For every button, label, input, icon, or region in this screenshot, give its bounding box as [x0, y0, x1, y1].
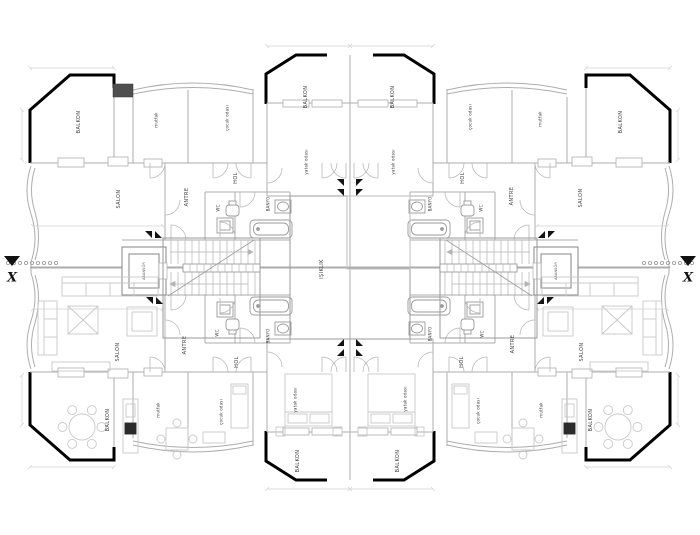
apartment-top-right: [348, 44, 680, 267]
room-label-salon-tr: SALON: [578, 189, 584, 208]
room-label-salon-tl: SALON: [116, 190, 122, 209]
room-label-balkon-corner-br: BALKON: [588, 409, 594, 432]
room-label-balkon-corner-tl: BALKON: [76, 111, 82, 134]
room-label-antre-tr: ANTRE: [509, 187, 515, 206]
apartment-top-left: [20, 44, 352, 267]
room-label-balkon-center-br: BALKON: [395, 450, 401, 473]
room-label-salon-br: SALON: [579, 343, 585, 362]
floor-plan-drawing: [0, 0, 700, 535]
room-label-balkon-center-bl: BALKON: [295, 450, 301, 473]
room-label-antre-tl: ANTRE: [184, 188, 190, 207]
room-label-banyo-tl: BANYO: [266, 197, 271, 212]
room-label-hol-tl: HOL: [233, 172, 239, 184]
shaft-block: [113, 84, 133, 97]
room-label-balkon-corner-bl: BALKON: [105, 409, 111, 432]
room-label-yatak-odasi-tl: yatak odası: [304, 149, 309, 174]
apartment-bottom-left: [20, 268, 352, 491]
section-marker-x-right: X: [683, 271, 693, 286]
room-label-cocuk-odasi-bl: çocuk odası: [219, 399, 224, 425]
room-label-balkon-center-tl: BALKON: [303, 86, 309, 109]
floor-plan-canvas: BALKON mutfak çocuk odası BALKON yatak o…: [0, 0, 700, 535]
light-well-label: IŞIKLIK: [319, 259, 325, 279]
room-label-antre-br: ANTRE: [510, 335, 516, 354]
room-label-mutfak-tl: mutfak: [154, 112, 159, 127]
room-label-cocuk-odasi-tr: çocuk odası: [468, 104, 473, 130]
room-label-cocuk-odasi-br: çocuk odası: [476, 398, 481, 424]
room-label-balkon-center-tr: BALKON: [390, 86, 396, 109]
room-label-wc-tl: WC: [216, 204, 221, 211]
room-label-balkon-corner-tr: BALKON: [618, 111, 624, 134]
room-label-wc-br: WC: [480, 330, 485, 337]
room-label-hol-bl: HOL: [234, 356, 240, 368]
room-label-yatak-odasi-tr: yatak odası: [391, 149, 396, 174]
room-label-hol-br: HOL: [459, 356, 465, 368]
section-line-right: [642, 256, 696, 266]
room-label-wc-bl: WC: [215, 329, 220, 336]
room-label-mutfak-br: mutfak: [539, 402, 544, 417]
room-label-yatak-odasi-bl: yatak odası: [293, 387, 298, 412]
room-label-hol-tr: HOL: [460, 172, 466, 184]
room-label-banyo-tr: BANYO: [428, 197, 433, 212]
elevator-label-left: ASANSÖR: [142, 262, 146, 280]
room-label-cocuk-odasi-tl: çocuk odası: [225, 105, 230, 131]
elevator-label-right: ASANSÖR: [554, 262, 558, 280]
room-label-wc-tr: WC: [479, 204, 484, 211]
room-label-banyo-br: BANYO: [428, 327, 433, 342]
room-label-yatak-odasi-br: yatak odası: [403, 386, 408, 411]
room-label-mutfak-bl: mutfak: [156, 402, 161, 417]
section-line-left: [4, 256, 58, 266]
room-label-mutfak-tr: mutfak: [538, 111, 543, 126]
room-label-salon-bl: SALON: [115, 343, 121, 362]
room-label-antre-bl: ANTRE: [182, 336, 188, 355]
room-label-banyo-bl: BANYO: [266, 329, 271, 344]
section-marker-x-left: X: [7, 271, 17, 286]
